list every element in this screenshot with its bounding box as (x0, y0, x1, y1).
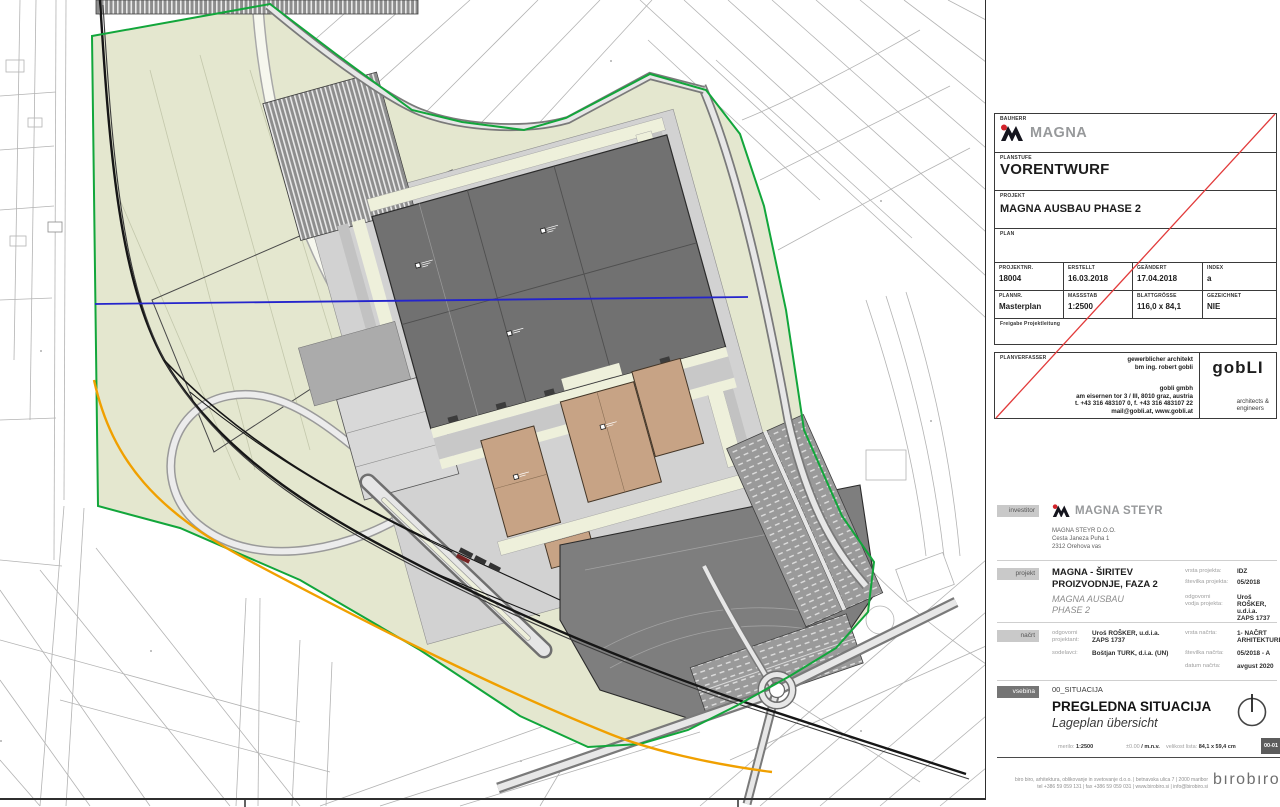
gobli-logo-cell: gobLI architects & engineers (1199, 353, 1276, 418)
projekt-label: PROJEKT (1000, 193, 1271, 199)
project-meta: vrsta projekta:IDZ številka projekta:05/… (1185, 568, 1277, 626)
velikost-meta: velikost lista: 84,1 x 59,4 cm (1166, 744, 1236, 750)
bauherr-row: BAUHERR MAGNA (995, 114, 1276, 153)
planstufe-value: VORENTWURF (1000, 161, 1271, 178)
plan-sheet: { "title_block": { "bauherr_label": "BAU… (0, 0, 1280, 807)
investitor-badge: investitor (997, 505, 1039, 517)
map-title: PREGLEDNA SITUACIJA (1052, 699, 1227, 714)
projekt-badge: projekt (997, 568, 1039, 580)
planverfasser-block: PLANVERFASSER gewerblicher architekt bm … (994, 352, 1277, 419)
bauherr-label: BAUHERR (1000, 116, 1271, 122)
magna-logo-icon (1000, 124, 1026, 141)
sheet-number-badge: 00-01 (1261, 738, 1280, 754)
planstufe-row: PLANSTUFE VORENTWURF (995, 153, 1276, 191)
map-code: 00_SITUACIJA (1052, 685, 1227, 694)
merilo-meta: merilo: 1:2500 (1058, 744, 1093, 750)
nacrt-badge: načrt (997, 630, 1039, 642)
magna-steyr-wordmark: MAGNA STEYR (1075, 505, 1163, 517)
investitor-address: MAGNA STEYR D.O.O. Cesta Janeza Puha 1 2… (1052, 527, 1116, 551)
nacrt-right: vrsta načrta:1- NAČRT ARHITEKTURE, števi… (1185, 630, 1280, 674)
projekt-value: MAGNA AUSBAU PHASE 2 (1000, 203, 1271, 215)
freigabe-row: Freigabe Projektleitung (995, 319, 1276, 344)
plan-meta-table: PROJEKTNR.18004 ERSTELLT16.03.2018 GEÄND… (995, 263, 1276, 319)
site-plan-map (0, 0, 986, 807)
north-arrow-icon (1234, 691, 1270, 729)
projekt-row: PROJEKT MAGNA AUSBAU PHASE 2 (995, 191, 1276, 229)
investitor-logo: MAGNA STEYR (1052, 504, 1163, 517)
elevation-meta: ±0.00 / m.n.v. (1126, 744, 1160, 750)
meta-cell: ERSTELLT16.03.2018 (1064, 263, 1133, 291)
birobiro-footer: biro biro, arhitektura, oblikovanje in s… (1000, 777, 1208, 790)
sheet-content: 00_SITUACIJA PREGLEDNA SITUACIJA Lagepla… (1052, 685, 1227, 730)
separator (997, 622, 1277, 623)
plan-row: PLAN (995, 229, 1276, 263)
gobli-logo: gobLI (1200, 358, 1276, 378)
meta-cell: BLATTGRÖSSE116,0 x 84,1 (1133, 291, 1203, 319)
title-block: BAUHERR MAGNA PLANSTUFE VORENTWURF PROJE… (994, 113, 1277, 345)
map-subtitle: Lageplan übersicht (1052, 716, 1227, 730)
meta-cell: PROJEKTNR.18004 (995, 263, 1064, 291)
birobiro-logo: bırobıro (1213, 771, 1280, 789)
meta-cell: PLANNR.Masterplan (995, 291, 1064, 319)
small-marker-box (48, 222, 62, 232)
plan-label: PLAN (1000, 231, 1271, 237)
vsebina-badge: vsebina (997, 686, 1039, 698)
meta-cell: GEZEICHNETNIE (1203, 291, 1276, 319)
separator (997, 560, 1277, 561)
meta-cell: INDEXa (1203, 263, 1276, 291)
meta-cell: MASSSTAB1:2500 (1064, 291, 1133, 319)
separator (997, 680, 1277, 681)
architect-info: gewerblicher architekt bm ing. robert go… (1053, 353, 1199, 418)
freigabe-label: Freigabe Projektleitung (1000, 321, 1271, 327)
magna-wordmark: MAGNA (1030, 125, 1087, 141)
meta-cell: GEÄNDERT17.04.2018 (1133, 263, 1203, 291)
project-title: MAGNA - ŠIRITEV PROIZVODNJE, FAZA 2 MAGN… (1052, 567, 1172, 616)
bottom-rule (997, 757, 1280, 758)
planverfasser-label: PLANVERFASSER (1000, 355, 1053, 361)
magna-steyr-logo-icon (1052, 504, 1072, 517)
nacrt-left: odgovorniprojektant: Uroš ROŠKER, u.d.i.… (1052, 630, 1177, 661)
